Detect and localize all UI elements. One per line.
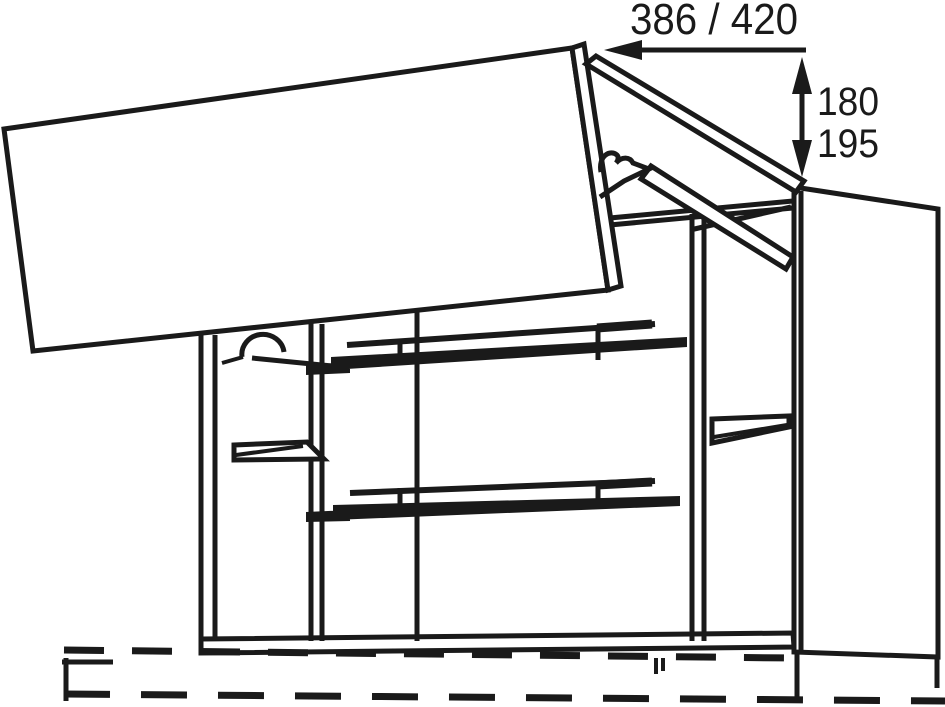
flap-fitting-arch (242, 334, 284, 357)
dimension-width: 386 / 420 (604, 0, 806, 60)
width-dimension-arrowhead-left (604, 40, 642, 60)
right-side-panel-floor-extensions (797, 652, 937, 698)
glass-shelf-upper (306, 324, 687, 375)
bottom-fixing-ticks (656, 658, 663, 674)
height-dimension-arrowhead-up (792, 57, 812, 94)
folded-upper-door-panel (586, 56, 804, 192)
dimension-height: 180 195 (792, 57, 879, 177)
folding-lift-door (4, 44, 804, 351)
open-flap-door-panel (4, 48, 608, 351)
folding-hinge-fitting (600, 153, 649, 197)
wall-dash-line-upper (64, 650, 790, 658)
right-side-panel-face (794, 187, 938, 657)
right-side-panel (794, 187, 938, 698)
flap-fitting-arch-base (222, 357, 243, 363)
cabinet-technical-diagram: 386 / 420 180 195 (0, 0, 945, 707)
wall-dash-line-lower (64, 694, 945, 701)
height-dimension-arrowhead-down (792, 140, 812, 177)
height-dimension-label-min: 180 (817, 80, 879, 124)
glass-shelf-lower (306, 481, 680, 522)
side-shelf-left (234, 442, 324, 460)
diagram-canvas: 386 / 420 180 195 (0, 0, 945, 707)
width-dimension-label: 386 / 420 (630, 0, 798, 44)
glass-shelf-lower-front-band (306, 496, 680, 522)
height-dimension-label-max: 195 (817, 122, 879, 166)
wall-reference-lines (62, 650, 945, 701)
side-shelf-right (712, 416, 789, 443)
